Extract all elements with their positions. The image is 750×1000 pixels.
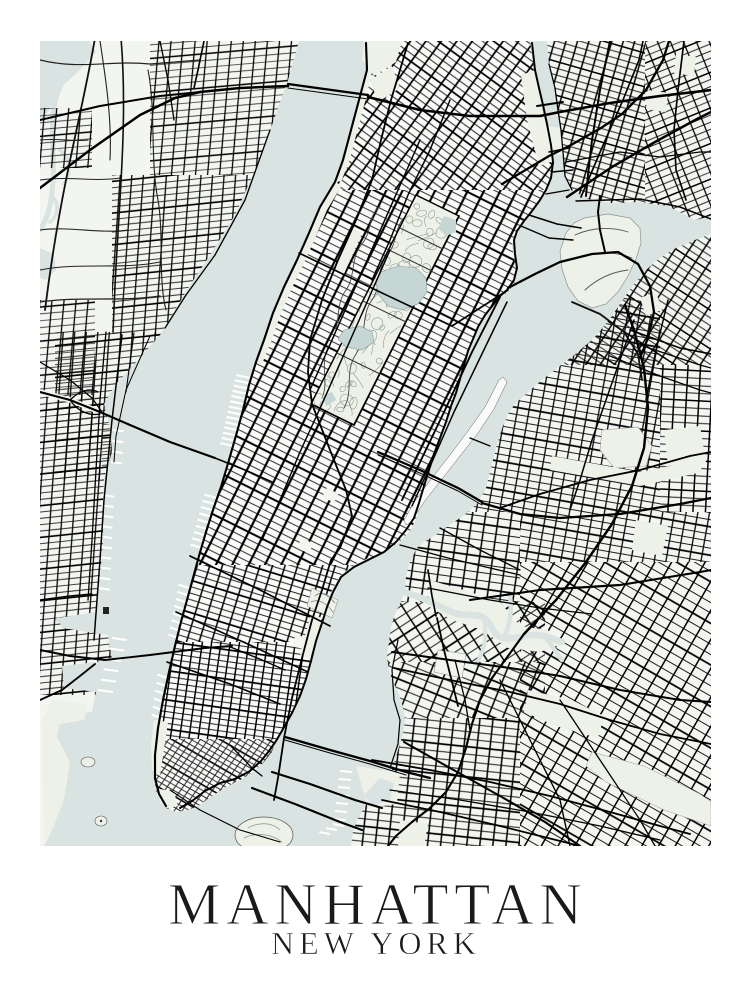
svg-text:NEW YORK: NEW YORK xyxy=(271,925,476,961)
